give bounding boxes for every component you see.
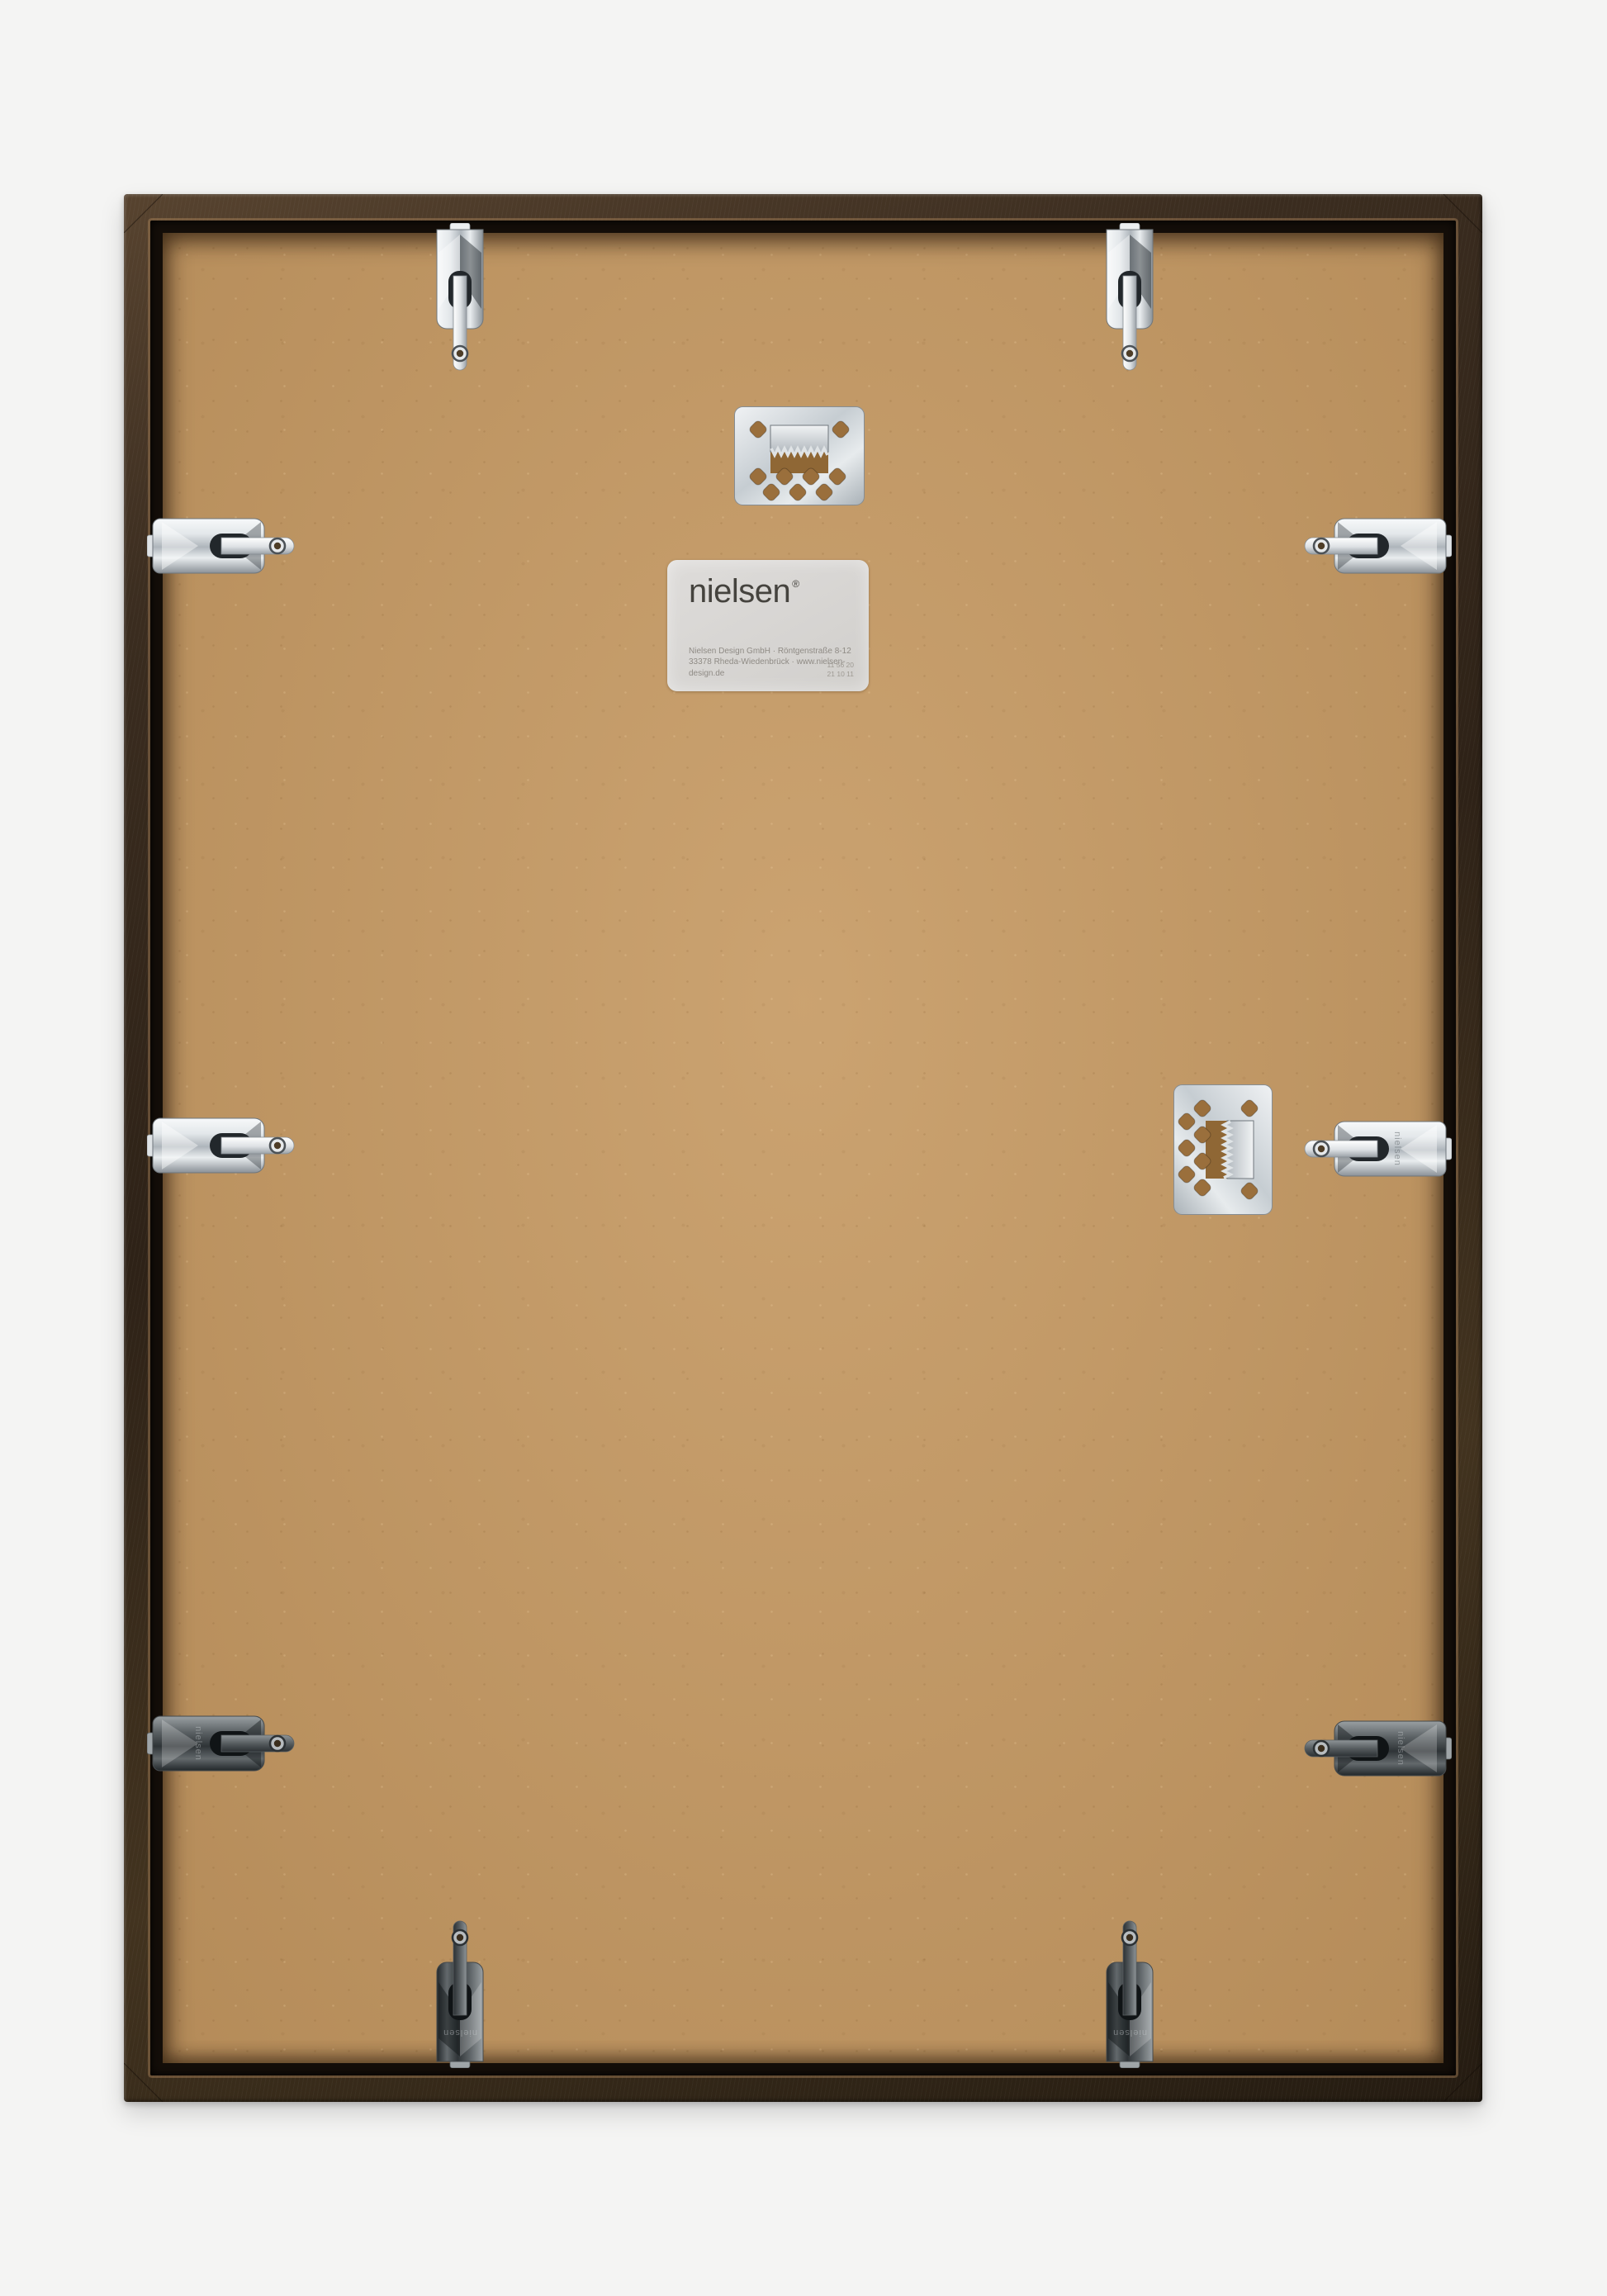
spring-clip-bottom-left: nielsen bbox=[432, 1909, 488, 2068]
spring-clip-right-middle: nielsen bbox=[1298, 1117, 1452, 1181]
sawtooth-hanger-top bbox=[733, 406, 865, 506]
spring-clip-top-left bbox=[432, 223, 488, 382]
spring-clip-left-lower: nielsen bbox=[147, 1711, 301, 1776]
spring-clip-left-middle bbox=[147, 1113, 301, 1178]
logo-text: nielsen bbox=[689, 573, 790, 610]
code-line-2: 21 10 11 bbox=[827, 670, 854, 679]
address-line-1: Nielsen Design GmbH · Röntgenstraße 8-12 bbox=[689, 646, 869, 657]
engraving-text: nielsen bbox=[443, 2028, 477, 2037]
engraving-text: nielsen bbox=[193, 1726, 203, 1761]
spring-clip-left-upper bbox=[147, 514, 301, 578]
registered-mark: ® bbox=[792, 578, 799, 590]
spring-clip-right-lower: nielsen bbox=[1298, 1716, 1452, 1781]
label-codes: 11 56 20 21 10 11 bbox=[827, 661, 854, 679]
spring-clip-bottom-right: nielsen bbox=[1102, 1909, 1158, 2068]
sawtooth-hanger-side bbox=[1173, 1084, 1273, 1216]
product-label: nielsen® Nielsen Design GmbH · Röntgenst… bbox=[667, 560, 869, 691]
nielsen-logo: nielsen® bbox=[689, 575, 798, 615]
engraving-text: nielsen bbox=[1112, 2028, 1147, 2037]
engraving-text: nielsen bbox=[1396, 1731, 1406, 1766]
code-line-1: 11 56 20 bbox=[827, 661, 854, 670]
spring-clip-right-upper bbox=[1298, 514, 1452, 578]
photo-frame-back: nielsen® Nielsen Design GmbH · Röntgenst… bbox=[0, 0, 1607, 2296]
spring-clip-top-right bbox=[1102, 223, 1158, 382]
engraving-text: nielsen bbox=[1392, 1131, 1402, 1166]
